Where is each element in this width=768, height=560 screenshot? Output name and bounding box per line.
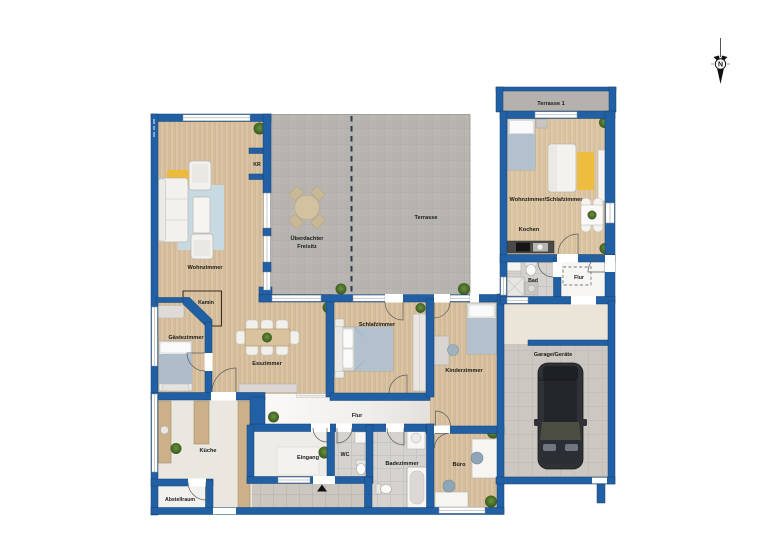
svg-text:Garage/Geräte: Garage/Geräte <box>538 377 577 383</box>
svg-text:Bad: Bad <box>528 278 538 284</box>
svg-text:Abstellraum: Abstellraum <box>165 497 195 503</box>
svg-text:Schlafzimmer: Schlafzimmer <box>359 322 396 328</box>
svg-text:Flur: Flur <box>352 413 363 419</box>
svg-text:Garage/Geräte: Garage/Geräte <box>534 352 573 358</box>
svg-text:Kinderzimmer: Kinderzimmer <box>445 368 483 374</box>
svg-text:KR: KR <box>253 162 261 168</box>
svg-text:Terrasse: Terrasse <box>415 215 438 221</box>
svg-text:Wohnzimmer/Schlafzimmer: Wohnzimmer/Schlafzimmer <box>510 197 584 203</box>
svg-text:N: N <box>718 62 723 69</box>
svg-text:Flur: Flur <box>574 275 584 281</box>
svg-text:Terrasse 1: Terrasse 1 <box>537 101 565 107</box>
svg-text:Küche: Küche <box>199 448 216 454</box>
svg-text:Freisitz: Freisitz <box>297 244 317 250</box>
svg-text:Büro: Büro <box>452 462 466 468</box>
svg-text:Badezimmer: Badezimmer <box>385 461 419 467</box>
svg-text:Gästezimmer: Gästezimmer <box>168 335 204 341</box>
svg-text:Esszimmer: Esszimmer <box>252 361 282 367</box>
svg-text:Kochen: Kochen <box>519 227 540 233</box>
svg-text:Eingang: Eingang <box>297 455 320 461</box>
svg-text:Wohnzimmer: Wohnzimmer <box>187 265 223 271</box>
svg-text:WC: WC <box>341 452 350 458</box>
svg-text:Überdachter: Überdachter <box>291 235 325 242</box>
svg-text:Kamin: Kamin <box>198 300 214 306</box>
